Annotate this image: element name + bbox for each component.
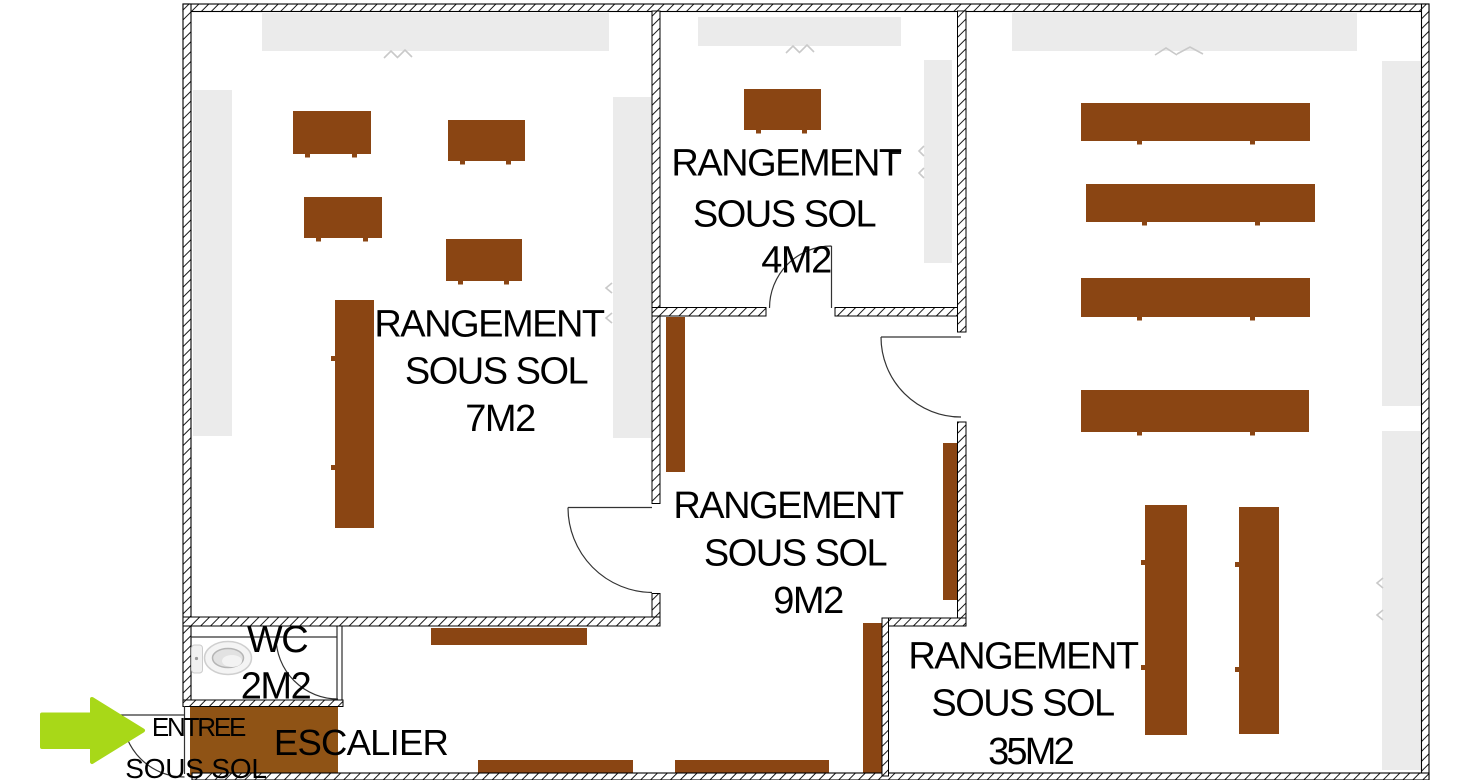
svg-text:2M2: 2M2 — [241, 666, 311, 708]
svg-text:4M2: 4M2 — [761, 240, 831, 282]
svg-text:ESCALIER: ESCALIER — [274, 722, 448, 763]
svg-text:RANGEMENT: RANGEMENT — [671, 143, 902, 185]
svg-text:7M2: 7M2 — [465, 398, 535, 440]
svg-text:ENTREE: ENTREE — [152, 712, 246, 742]
svg-text:RANGEMENT: RANGEMENT — [673, 485, 904, 527]
svg-text:SOUS SOL: SOUS SOL — [704, 533, 887, 575]
svg-text:SOUS SOL: SOUS SOL — [405, 351, 588, 393]
svg-text:RANGEMENT: RANGEMENT — [374, 304, 605, 346]
svg-text:SOUS SOL: SOUS SOL — [693, 194, 876, 236]
svg-text:35M2: 35M2 — [988, 731, 1074, 773]
svg-text:WC: WC — [247, 619, 307, 661]
svg-text:SOUS SOL: SOUS SOL — [125, 753, 267, 780]
svg-text:SOUS SOL: SOUS SOL — [931, 683, 1114, 725]
svg-text:RANGEMENT: RANGEMENT — [908, 636, 1139, 678]
svg-text:9M2: 9M2 — [773, 580, 843, 622]
